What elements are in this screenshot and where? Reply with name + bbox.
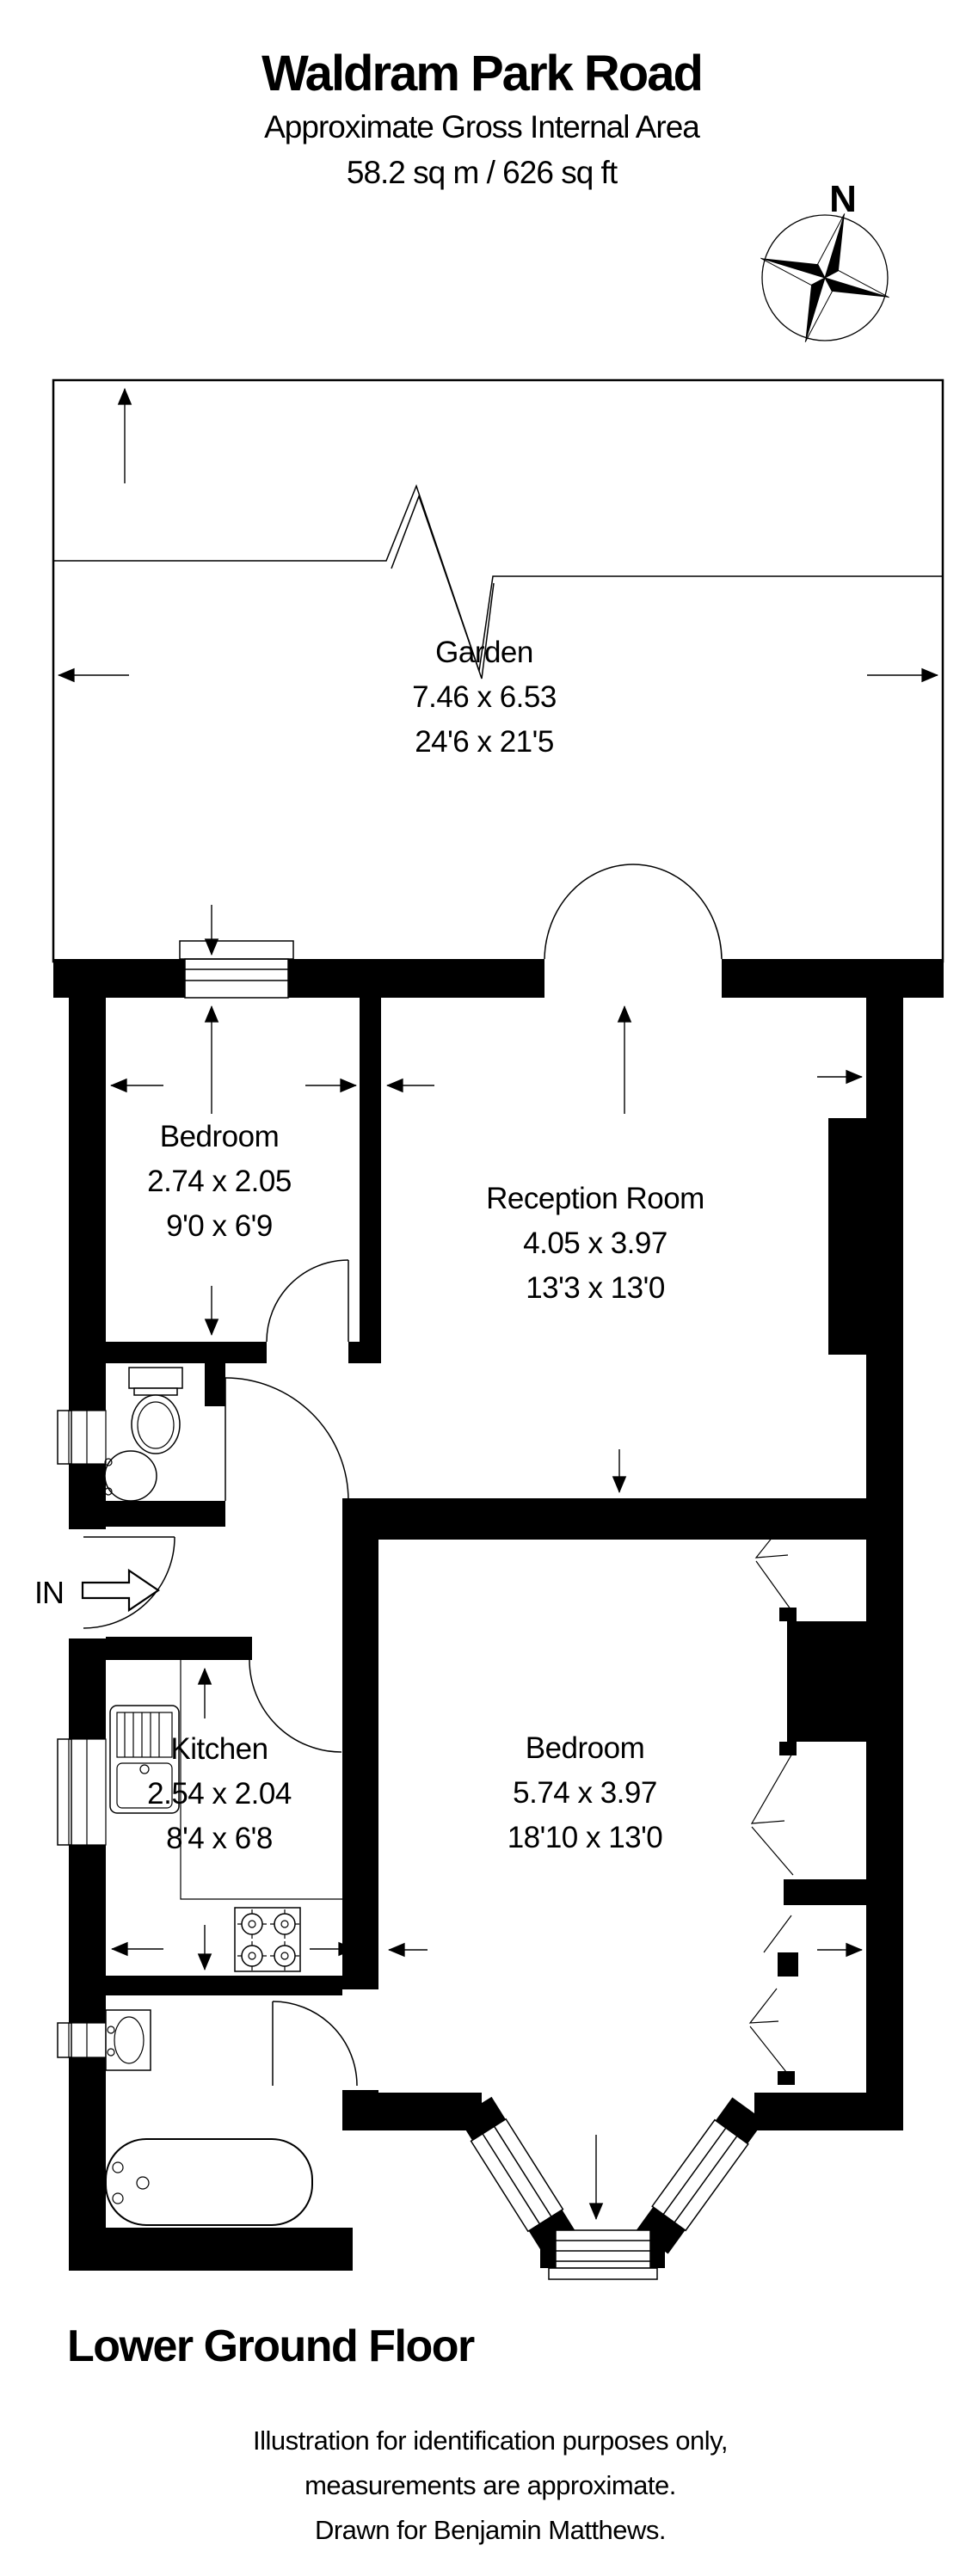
window-bay-centre (549, 2230, 657, 2279)
chimney-breast (828, 1118, 866, 1355)
room-label-bedroom-top: Bedroom 2.74 x 2.05 9'0 x 6'9 (147, 1120, 292, 1243)
garden-area: Garden 7.46 x 6.53 24'6 x 21'5 (53, 380, 943, 962)
room-label-bedroom-main: Bedroom 5.74 x 3.97 18'10 x 13'0 (508, 1731, 663, 1854)
bathroom-basin-icon (106, 2010, 151, 2070)
bedroom-main-name: Bedroom (526, 1731, 645, 1765)
hall-door-arc (225, 1378, 348, 1501)
walls (53, 959, 944, 2271)
garden-boundary (53, 380, 943, 962)
bedroom-top-name: Bedroom (160, 1120, 280, 1153)
disclaimer-line-2: measurements are approximate. (305, 2470, 676, 2500)
disclaimer: Illustration for identification purposes… (253, 2425, 728, 2545)
bedroom-main-size-metric: 5.74 x 3.97 (513, 1776, 657, 1810)
bedroom-top-door-arc (267, 1260, 348, 1342)
window-bay-right (652, 2120, 748, 2231)
disclaimer-line-3: Drawn for Benjamin Matthews. (315, 2515, 666, 2545)
reception-size-metric: 4.05 x 3.97 (523, 1227, 667, 1260)
toilet-icon (129, 1368, 182, 1454)
garden-size-imperial: 24'6 x 21'5 (415, 725, 554, 759)
bedroom-main-size-imperial: 18'10 x 13'0 (508, 1821, 663, 1854)
wc-basin-icon (105, 1451, 157, 1501)
reception-size-imperial: 13'3 x 13'0 (526, 1271, 665, 1305)
alcove-notation-2 (752, 1752, 793, 1875)
window-bay-left (471, 2119, 563, 2231)
header: Waldram Park Road Approximate Gross Inte… (261, 46, 702, 190)
kitchen-size-imperial: 8'4 x 6'8 (166, 1822, 273, 1855)
dimension-arrows (111, 905, 862, 2219)
garden-size-metric: 7.46 x 6.53 (412, 680, 557, 714)
floorplan-page: Waldram Park Road Approximate Gross Inte… (0, 0, 972, 2576)
doors (83, 864, 722, 2086)
room-label-reception: Reception Room 4.05 x 3.97 13'3 x 13'0 (486, 1182, 704, 1305)
floor-plan-canvas: Waldram Park Road Approximate Gross Inte… (0, 0, 972, 2576)
compass-north-icon: N (760, 178, 889, 342)
reception-name: Reception Room (486, 1182, 704, 1215)
bedroom-top-size-metric: 2.74 x 2.05 (147, 1165, 292, 1198)
compass-north-label: N (829, 178, 857, 220)
page-title: Waldram Park Road (261, 46, 702, 101)
garden-name: Garden (435, 636, 533, 669)
bathtub-icon (106, 2139, 312, 2225)
hob-icon (235, 1908, 300, 1971)
disclaimer-line-1: Illustration for identification purposes… (253, 2425, 728, 2456)
entrance-label: IN (34, 1575, 64, 1610)
header-area: 58.2 sq m / 626 sq ft (347, 155, 618, 190)
bedroom-top-size-imperial: 9'0 x 6'9 (166, 1209, 273, 1243)
floor-label: Lower Ground Floor (67, 2321, 475, 2371)
header-subtitle: Approximate Gross Internal Area (264, 109, 700, 144)
kitchen-name: Kitchen (170, 1732, 268, 1766)
kitchen-size-metric: 2.54 x 2.04 (147, 1777, 292, 1811)
alcove-notation-3 (750, 1915, 791, 2076)
